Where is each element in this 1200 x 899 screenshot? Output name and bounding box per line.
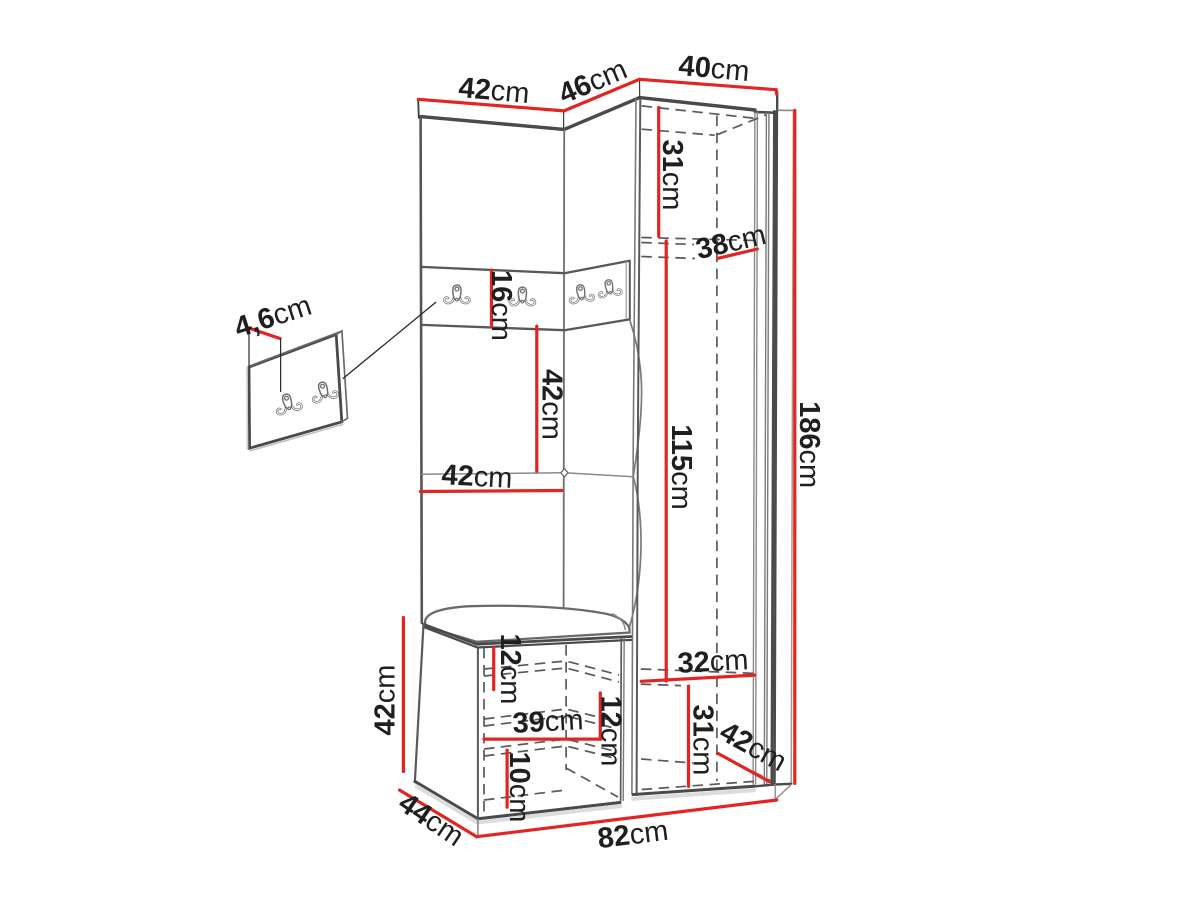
svg-text:12cm: 12cm <box>595 696 627 767</box>
svg-text:10cm: 10cm <box>503 752 535 823</box>
svg-text:186cm: 186cm <box>793 401 825 488</box>
svg-text:32cm: 32cm <box>677 644 750 680</box>
svg-text:16cm: 16cm <box>485 270 517 341</box>
svg-text:42cm: 42cm <box>536 369 568 440</box>
svg-text:42cm: 42cm <box>369 665 401 736</box>
svg-text:42cm: 42cm <box>441 459 514 495</box>
svg-text:31cm: 31cm <box>656 140 688 211</box>
svg-text:39cm: 39cm <box>512 704 585 740</box>
svg-text:40cm: 40cm <box>677 50 750 88</box>
svg-text:12cm: 12cm <box>494 634 526 705</box>
svg-text:31cm: 31cm <box>687 705 719 776</box>
svg-text:42cm: 42cm <box>457 72 530 110</box>
svg-text:115cm: 115cm <box>665 424 697 509</box>
